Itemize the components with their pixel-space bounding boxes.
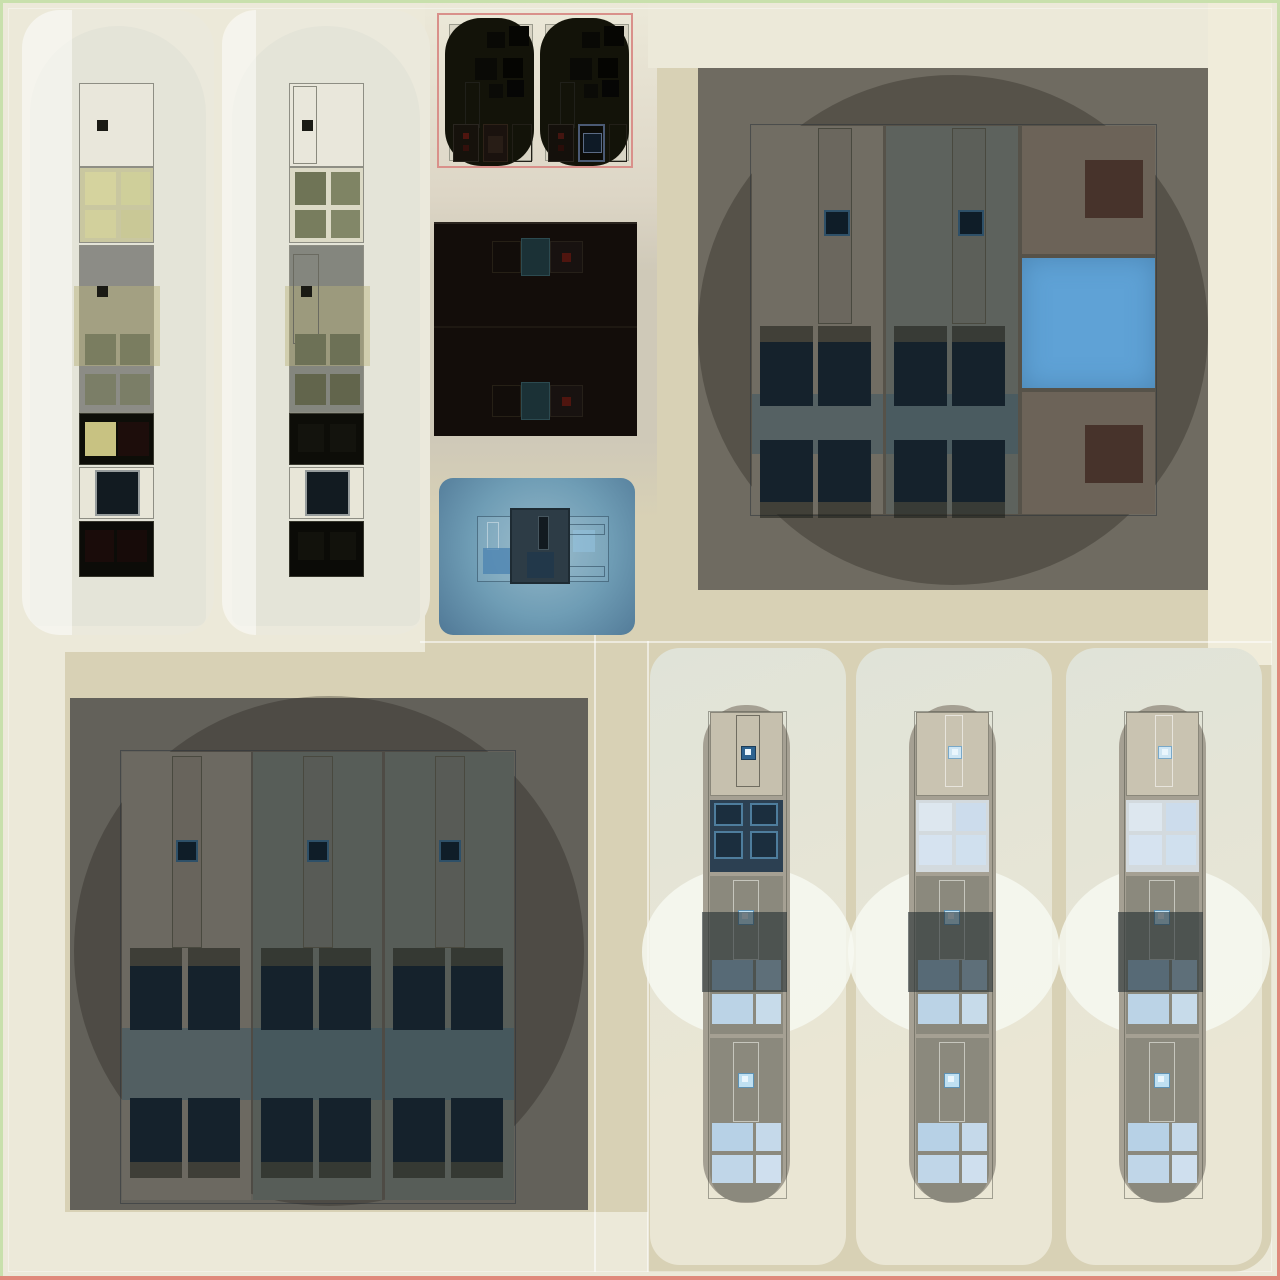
inner-frame bbox=[8, 8, 1272, 1272]
scene-canvas bbox=[0, 0, 1280, 1280]
frame-bottom bbox=[0, 1276, 1280, 1280]
frame-left bbox=[0, 0, 3, 1280]
frame-top bbox=[0, 0, 1280, 3]
